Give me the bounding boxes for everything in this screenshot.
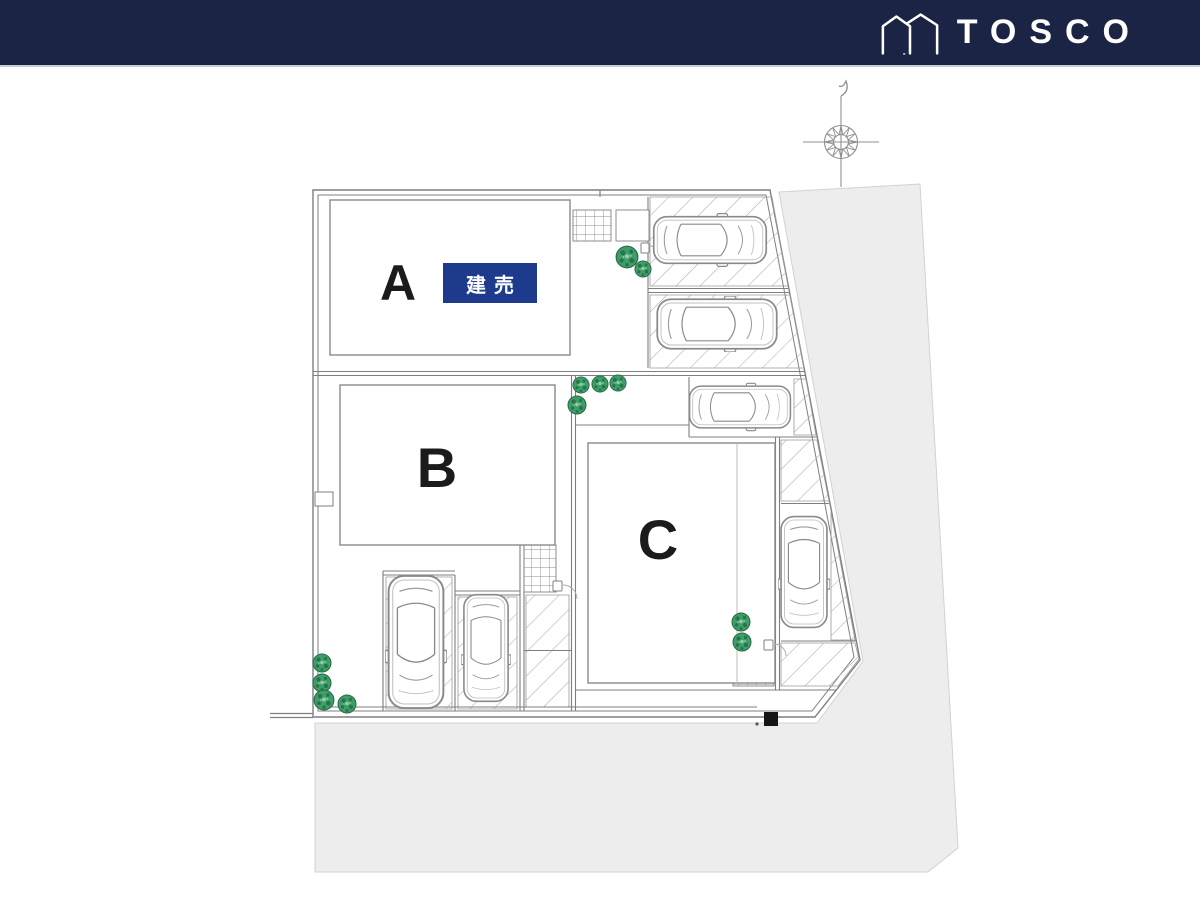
car-icon <box>654 214 766 267</box>
tree-icon <box>592 376 608 392</box>
lot-b-label: B <box>417 440 457 496</box>
lot-c-label: C <box>638 512 678 568</box>
car-icon <box>690 383 791 430</box>
lot-a-label: A <box>380 258 416 308</box>
tree-icon <box>314 690 334 710</box>
tree-icon <box>313 674 331 692</box>
tree-icon <box>610 375 626 391</box>
car-icon <box>657 296 776 352</box>
car-icon <box>385 576 447 708</box>
tree-icon <box>573 377 589 393</box>
app-header: TOSCO <box>0 0 1200 67</box>
tosco-logo: TOSCO <box>879 10 1142 56</box>
tree-icon <box>338 695 356 713</box>
tosco-house-icon <box>879 10 941 56</box>
tree-icon <box>313 654 331 672</box>
tree-icon <box>568 396 586 414</box>
car-icon <box>461 595 511 702</box>
car-icon <box>778 517 830 628</box>
lot-a-sale-badge: 建売 <box>443 263 537 303</box>
page: TOSCO A 建売 B C <box>0 0 1200 900</box>
site-plan-drawing <box>0 0 1200 900</box>
compass-icon <box>803 81 879 187</box>
tree-icon <box>616 246 638 268</box>
brand-text: TOSCO <box>957 15 1142 49</box>
tree-icon <box>733 633 751 651</box>
tree-icon <box>635 261 651 277</box>
tree-icon <box>732 613 750 631</box>
